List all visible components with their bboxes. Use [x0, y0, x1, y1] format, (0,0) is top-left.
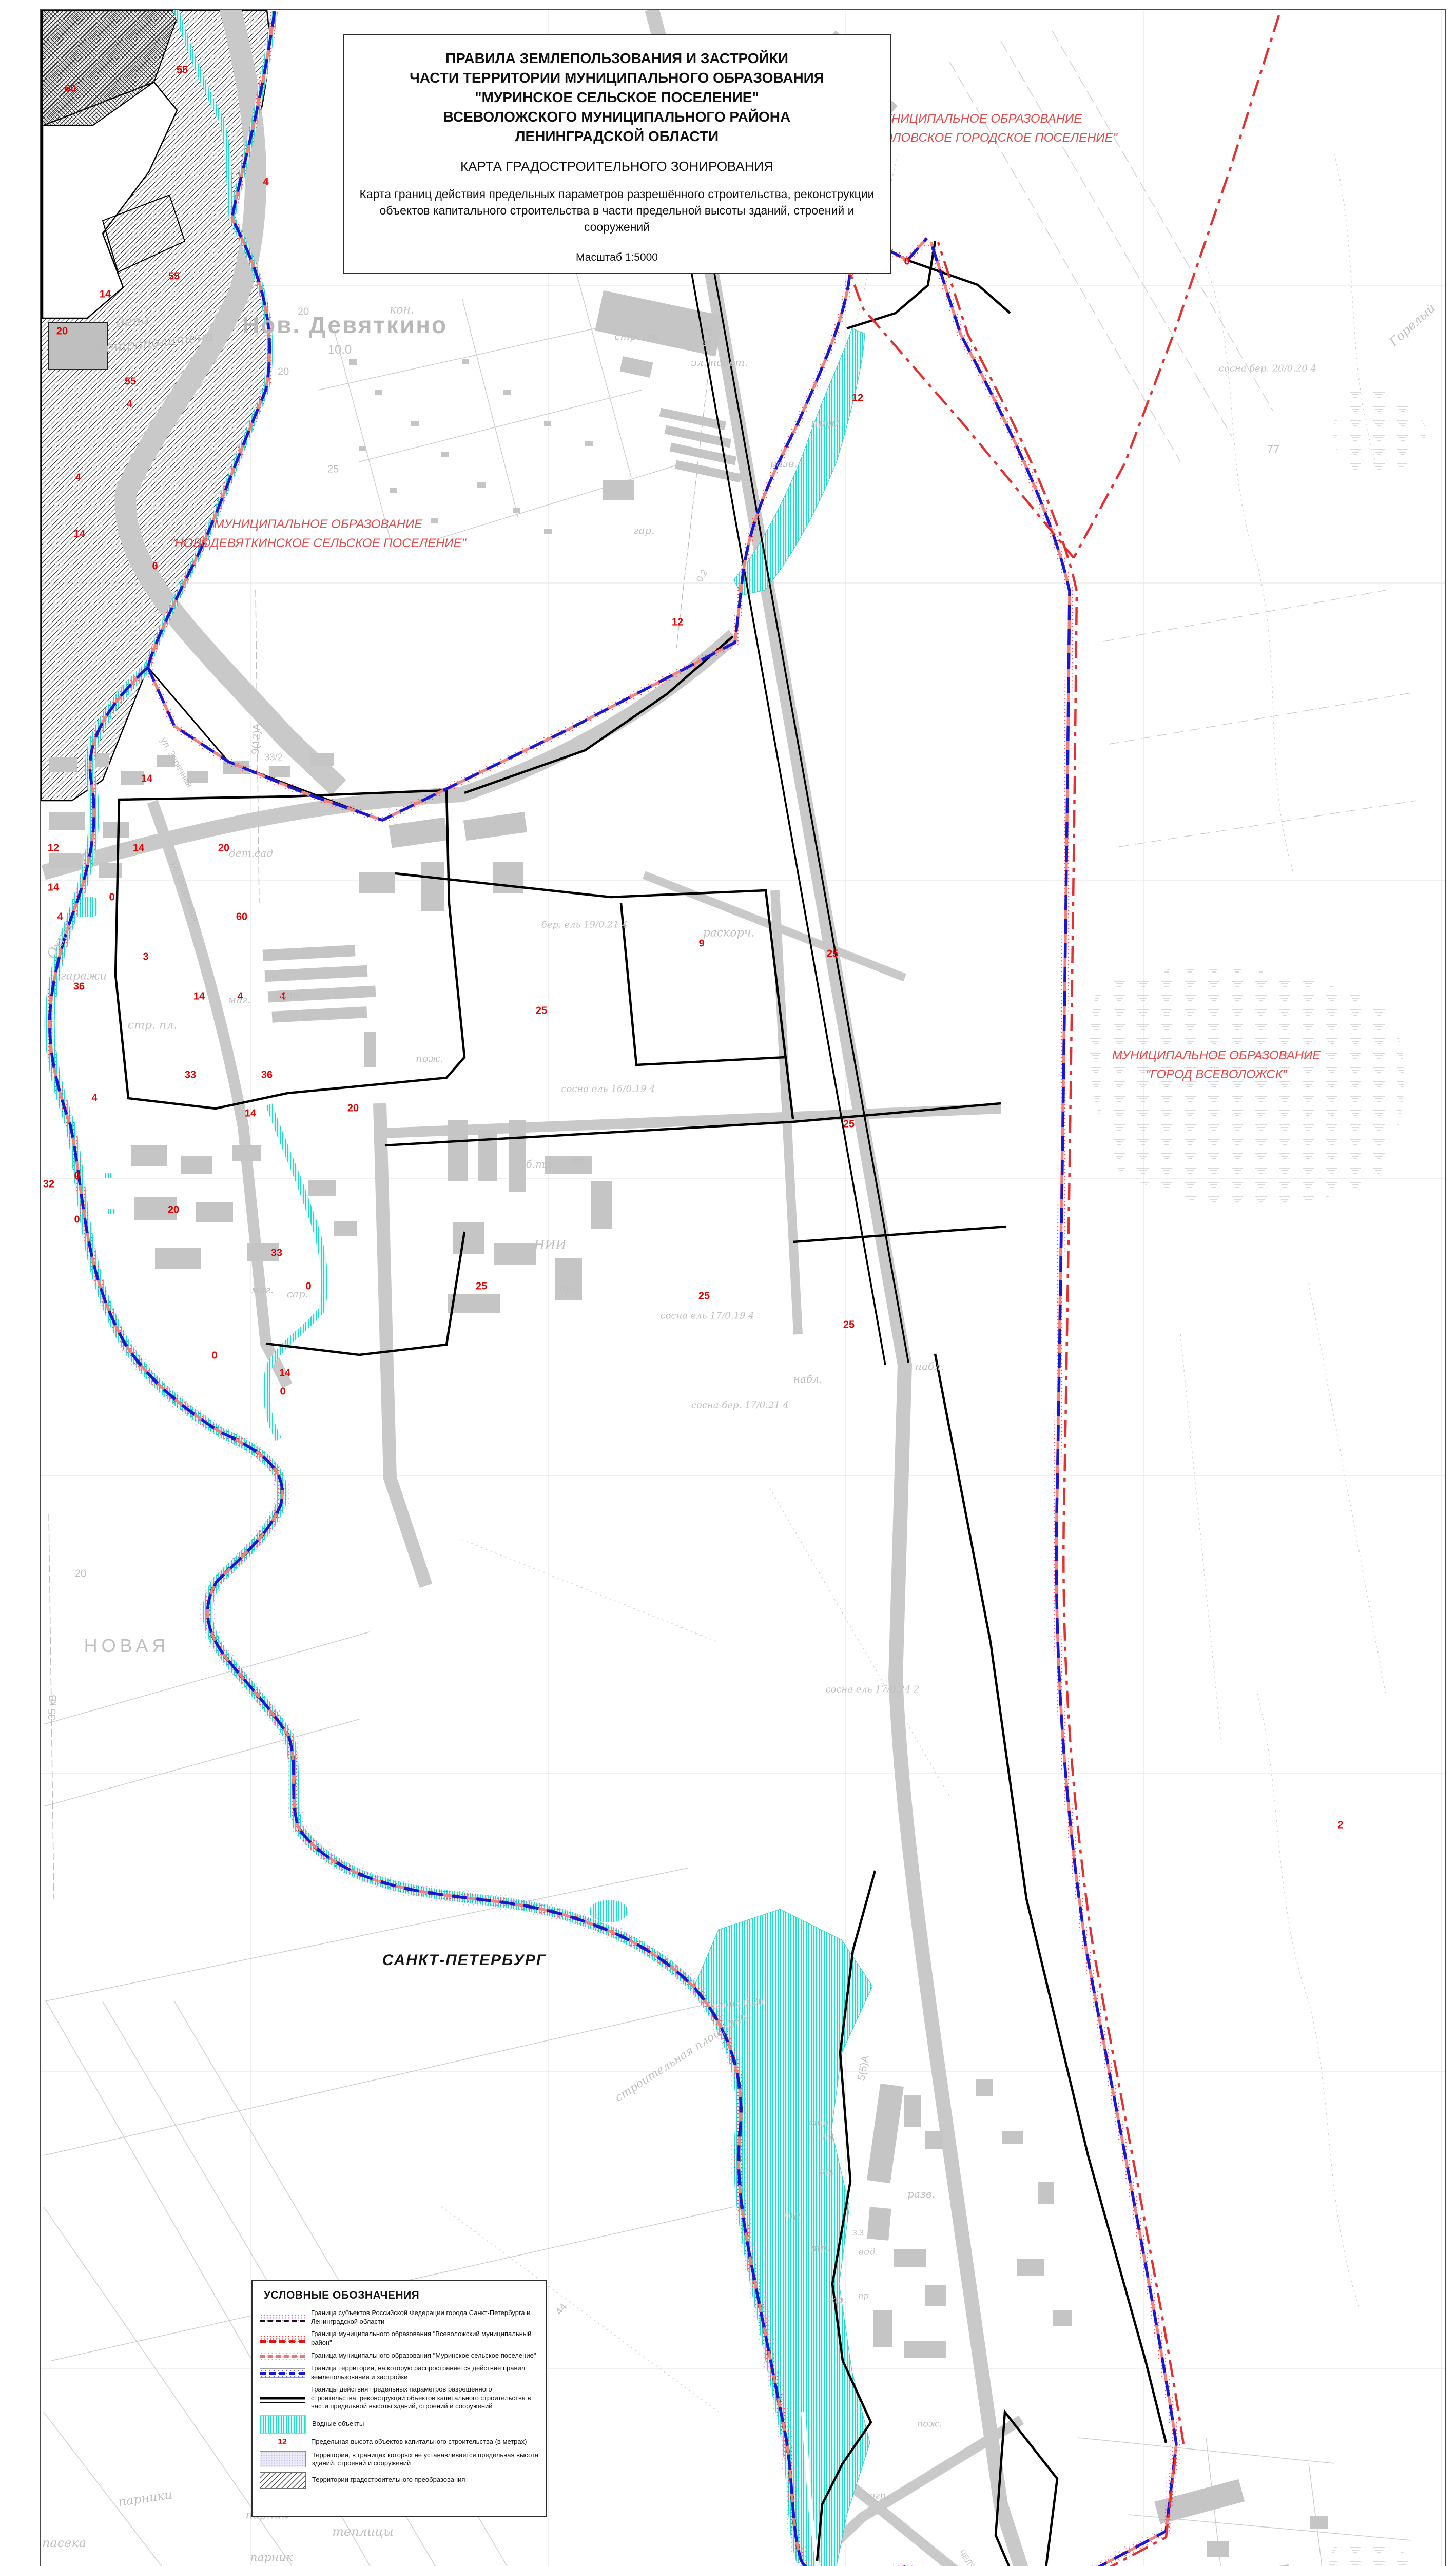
legend-item-ppz-border: Граница территории, на которую распростр…: [260, 2364, 539, 2381]
subject-border-swatch: [260, 2314, 305, 2321]
legend-item-transform-territory: Территории градостроительного преобразов…: [260, 2472, 539, 2489]
map-description: Карта границ действия предельных парамет…: [359, 186, 875, 235]
no-height-territory-swatch: [260, 2451, 306, 2467]
title-line: ЧАСТИ ТЕРРИТОРИИ МУНИЦИПАЛЬНОГО ОБРАЗОВА…: [359, 68, 875, 88]
title-block: ПРАВИЛА ЗЕМЛЕПОЛЬЗОВАНИЯ И ЗАСТРОЙКИ ЧАС…: [343, 34, 891, 274]
height-number-swatch: 12: [260, 2438, 305, 2447]
legend-item-no-height-territory: Территории, в границах которых не устана…: [260, 2451, 539, 2468]
legend-item-height: 12 Предельная высота объектов капитально…: [260, 2438, 539, 2447]
title-line: "МУРИНСКОЕ СЕЛЬСКОЕ ПОСЕЛЕНИЕ": [359, 88, 875, 107]
title-line: ВСЕВОЛОЖСКОГО МУНИЦИПАЛЬНОГО РАЙОНА: [359, 107, 875, 127]
settlement-border-swatch: [260, 2351, 305, 2360]
legend-title: УСЛОВНЫЕ ОБОЗНАЧЕНИЯ: [264, 2289, 539, 2302]
map-svg: [0, 0, 1456, 2566]
title-line: ПРАВИЛА ЗЕМЛЕПОЛЬЗОВАНИЯ И ЗАСТРОЙКИ: [359, 49, 875, 68]
ppz-border-swatch: [260, 2368, 305, 2378]
map-scale: Масштаб 1:5000: [359, 251, 875, 264]
legend-item-settlement-border: Граница муниципального образования "Мури…: [260, 2351, 539, 2360]
legend-item-district-border: Граница муниципального образования "Всев…: [260, 2330, 539, 2347]
limit-border-swatch: [260, 2394, 305, 2403]
map-subtitle: КАРТА ГРАДОСТРОИТЕЛЬНОГО ЗОНИРОВАНИЯ: [359, 159, 875, 174]
legend-item-subject-border: Граница субъектов Российской Федерации г…: [260, 2309, 539, 2326]
pond: [734, 328, 865, 595]
transform-territory-swatch: [260, 2472, 306, 2489]
legend: УСЛОВНЫЕ ОБОЗНАЧЕНИЯ Граница субъектов Р…: [251, 2280, 547, 2517]
water-swatch: [260, 2415, 306, 2434]
map-sheet: 6055455142055441400121214121420140460336…: [0, 0, 1456, 2566]
district-border-swatch: [260, 2335, 305, 2342]
legend-item-water: Водные объекты: [260, 2415, 539, 2434]
legend-item-limit-border: Границы действия предельных параметров р…: [260, 2385, 539, 2411]
title-line: ЛЕНИНГРАДСКОЙ ОБЛАСТИ: [359, 127, 875, 146]
